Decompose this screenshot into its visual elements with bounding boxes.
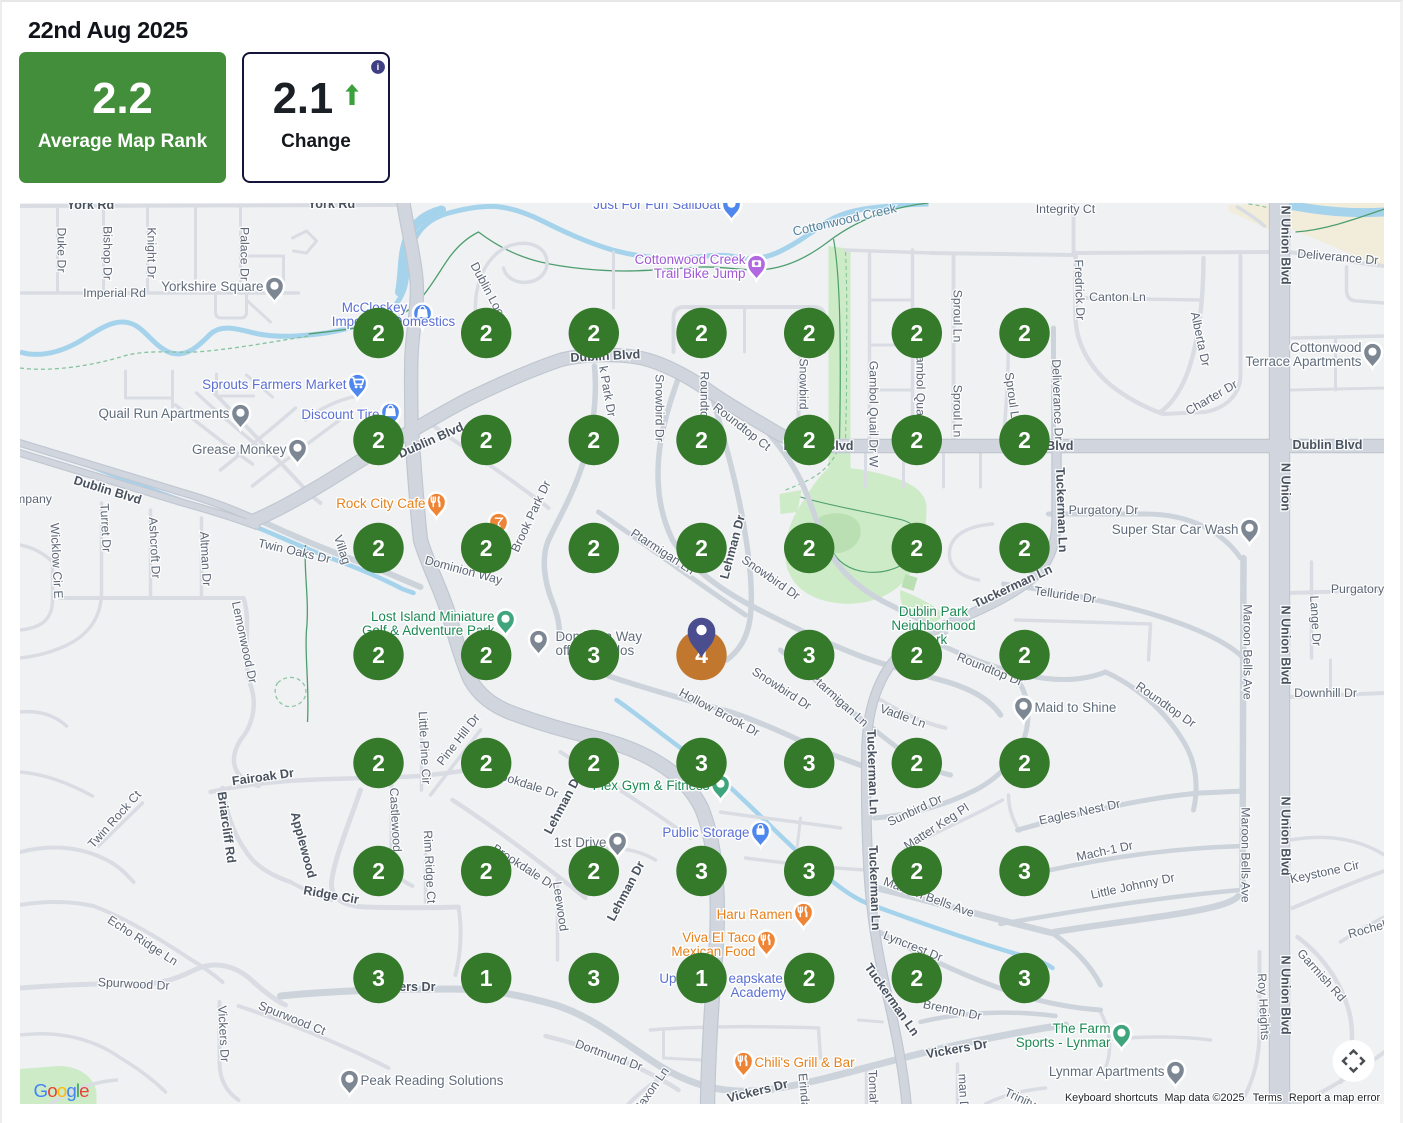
svg-text:2: 2: [372, 427, 385, 453]
svg-text:3: 3: [802, 642, 815, 668]
svg-text:Vickers Dr: Vickers Dr: [215, 1005, 232, 1062]
svg-text:2: 2: [1018, 750, 1031, 776]
svg-text:2: 2: [479, 427, 492, 453]
svg-text:2: 2: [1018, 427, 1031, 453]
svg-text:i: i: [377, 62, 380, 73]
svg-text:Maroon Bells Ave: Maroon Bells Ave: [1240, 604, 1254, 700]
svg-text:man Dr: man Dr: [955, 1073, 971, 1104]
svg-text:2: 2: [910, 320, 923, 346]
svg-text:Viva El Taco: Viva El Taco: [682, 930, 755, 945]
svg-text:Maid to Shine: Maid to Shine: [1034, 700, 1116, 715]
svg-text:Academy: Academy: [730, 985, 786, 1000]
svg-text:Gambol Quail Dr W: Gambol Quail Dr W: [866, 361, 880, 468]
svg-text:Maroon Bells Ave: Maroon Bells Ave: [1238, 807, 1252, 903]
svg-text:2: 2: [695, 427, 708, 453]
svg-text:2: 2: [479, 858, 492, 884]
svg-text:Keyboard shortcuts: Keyboard shortcuts: [1064, 1092, 1158, 1104]
svg-text:2: 2: [587, 858, 600, 884]
svg-text:Report a map error: Report a map error: [1288, 1092, 1380, 1104]
svg-text:Map data ©2025: Map data ©2025: [1164, 1092, 1244, 1104]
svg-text:Rock City Cafe: Rock City Cafe: [336, 496, 425, 511]
svg-text:Terms: Terms: [1252, 1092, 1282, 1104]
svg-text:N Union Blvd: N Union Blvd: [1278, 796, 1292, 875]
svg-text:Cottonwood: Cottonwood: [1290, 340, 1361, 355]
svg-text:Chili's Grill & Bar: Chili's Grill & Bar: [754, 1055, 855, 1070]
svg-text:eapskate: eapskate: [728, 971, 782, 986]
svg-text:York Rd: York Rd: [66, 203, 113, 212]
svg-text:2: 2: [910, 642, 923, 668]
svg-text:N Union Blvd: N Union Blvd: [1278, 205, 1292, 284]
svg-text:Knight Dr: Knight Dr: [144, 227, 158, 278]
svg-text:Just For Fun Sailboat: Just For Fun Sailboat: [593, 203, 721, 212]
svg-text:Lange Dr: Lange Dr: [1307, 595, 1324, 646]
svg-text:Up: Up: [659, 971, 676, 986]
svg-text:Erindale: Erindale: [795, 1073, 813, 1104]
svg-text:3: 3: [1018, 965, 1031, 991]
svg-text:Terrace Apartments: Terrace Apartments: [1245, 354, 1361, 369]
svg-text:Bishop Dr: Bishop Dr: [100, 226, 114, 280]
svg-text:Peak Reading Solutions: Peak Reading Solutions: [360, 1073, 503, 1088]
svg-text:Integrity Ct: Integrity Ct: [1035, 203, 1095, 216]
svg-text:2: 2: [1018, 642, 1031, 668]
svg-text:2: 2: [372, 750, 385, 776]
svg-text:Downhill Dr: Downhill Dr: [1294, 686, 1357, 700]
svg-text:Duke Dr: Duke Dr: [54, 227, 68, 272]
svg-text:Deliverance Dr: Deliverance Dr: [1049, 359, 1066, 441]
svg-text:2: 2: [372, 320, 385, 346]
svg-text:Tomah Rd: Tomah Rd: [865, 1070, 881, 1104]
svg-text:Purgatory: Purgatory: [1330, 582, 1383, 596]
svg-text:2: 2: [695, 320, 708, 346]
svg-text:Tuckerman Ln: Tuckerman Ln: [866, 845, 883, 931]
svg-text:Sproul Ln: Sproul Ln: [950, 290, 964, 343]
svg-text:Dublin Blvd: Dublin Blvd: [1292, 438, 1362, 452]
svg-text:Haru Ramen: Haru Ramen: [716, 907, 792, 922]
svg-text:2: 2: [910, 965, 923, 991]
svg-text:2: 2: [910, 858, 923, 884]
svg-text:Tuckerman Ln: Tuckerman Ln: [1053, 467, 1070, 553]
svg-text:Trail Bike Jump: Trail Bike Jump: [653, 266, 745, 281]
svg-text:N Union: N Union: [1278, 463, 1292, 511]
svg-text:2: 2: [1018, 320, 1031, 346]
svg-text:2: 2: [587, 427, 600, 453]
svg-text:Canton Ln: Canton Ln: [1089, 290, 1146, 304]
svg-text:1: 1: [479, 965, 492, 991]
svg-text:2: 2: [479, 535, 492, 561]
svg-text:2: 2: [695, 535, 708, 561]
svg-text:2: 2: [802, 320, 815, 346]
svg-text:Neighborhood: Neighborhood: [891, 618, 975, 633]
svg-text:2: 2: [479, 320, 492, 346]
svg-text:Snowbird Dr: Snowbird Dr: [652, 374, 666, 442]
svg-text:Dublin Park: Dublin Park: [898, 604, 968, 619]
svg-text:Quail Run Apartments: Quail Run Apartments: [98, 406, 229, 421]
svg-text:2: 2: [802, 965, 815, 991]
svg-text:York Rd: York Rd: [307, 203, 354, 211]
svg-text:mpany: mpany: [20, 492, 53, 506]
svg-text:Yorkshire Square: Yorkshire Square: [161, 279, 263, 294]
svg-text:2: 2: [372, 642, 385, 668]
svg-text:2: 2: [587, 535, 600, 561]
svg-text:2: 2: [1018, 535, 1031, 561]
svg-text:2: 2: [802, 535, 815, 561]
svg-text:Super Star Car Wash: Super Star Car Wash: [1111, 522, 1238, 537]
svg-text:Fredrick Dr: Fredrick Dr: [1071, 259, 1087, 320]
svg-text:Altman Dr: Altman Dr: [197, 531, 214, 586]
svg-text:Sprouts Farmers Market: Sprouts Farmers Market: [202, 377, 347, 392]
svg-text:3: 3: [587, 642, 600, 668]
svg-text:2: 2: [910, 535, 923, 561]
svg-text:3: 3: [695, 858, 708, 884]
svg-text:2: 2: [372, 535, 385, 561]
svg-text:Purgatory Dr: Purgatory Dr: [1068, 503, 1138, 517]
svg-text:3: 3: [802, 858, 815, 884]
svg-text:2: 2: [587, 750, 600, 776]
svg-text:N Union Blvd: N Union Blvd: [1278, 955, 1292, 1034]
svg-text:Lost Island Miniature: Lost Island Miniature: [370, 609, 494, 624]
svg-text:The Farm: The Farm: [1052, 1021, 1110, 1036]
svg-text:Public Storage: Public Storage: [662, 825, 749, 840]
svg-text:3: 3: [695, 750, 708, 776]
svg-text:1: 1: [695, 965, 708, 991]
svg-text:Imperial Rd: Imperial Rd: [83, 286, 146, 300]
svg-text:2: 2: [910, 750, 923, 776]
svg-text:Cottonwood Creek: Cottonwood Creek: [634, 252, 745, 267]
svg-text:Palace Dr: Palace Dr: [237, 227, 251, 281]
svg-text:3: 3: [587, 965, 600, 991]
svg-text:Sproul Ln: Sproul Ln: [950, 385, 964, 438]
svg-text:Snowbird: Snowbird: [796, 358, 810, 409]
svg-text:Grease Monkey: Grease Monkey: [191, 442, 286, 457]
svg-text:2: 2: [372, 858, 385, 884]
svg-text:Tuckerman Ln: Tuckerman Ln: [864, 729, 881, 815]
svg-text:2: 2: [479, 642, 492, 668]
svg-text:3: 3: [802, 750, 815, 776]
svg-text:Google: Google: [33, 1080, 89, 1101]
svg-text:N Union Blvd: N Union Blvd: [1278, 605, 1292, 684]
svg-text:3: 3: [1018, 858, 1031, 884]
svg-text:Lynmar Apartments: Lynmar Apartments: [1048, 1064, 1164, 1079]
svg-text:Turret Dr: Turret Dr: [97, 503, 114, 552]
svg-text:3: 3: [372, 965, 385, 991]
svg-text:2: 2: [587, 320, 600, 346]
svg-text:2: 2: [479, 750, 492, 776]
svg-text:2: 2: [802, 427, 815, 453]
svg-text:Sports - Lynmar: Sports - Lynmar: [1015, 1035, 1110, 1050]
svg-text:2: 2: [910, 427, 923, 453]
